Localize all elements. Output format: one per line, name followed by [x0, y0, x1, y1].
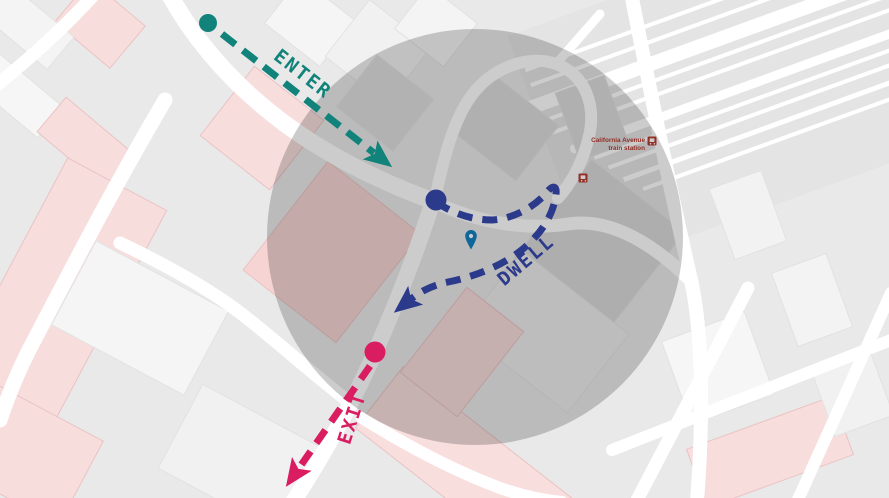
- exit-start-dot: [365, 342, 386, 363]
- dwell-dot: [426, 190, 447, 211]
- enter-start-dot: [199, 14, 217, 32]
- map-canvas[interactable]: California Avenue train station ENTER DW…: [0, 0, 889, 498]
- map-svg: California Avenue train station ENTER DW…: [0, 0, 889, 498]
